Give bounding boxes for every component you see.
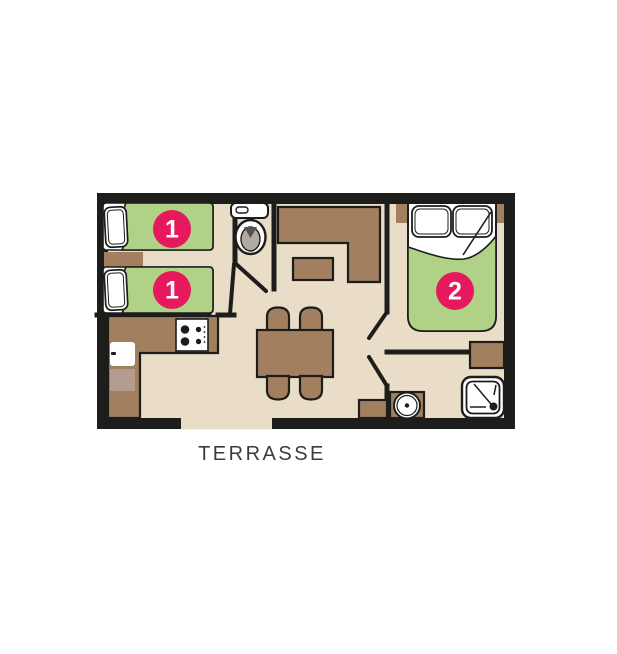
bathroom-cabinet [359, 400, 387, 418]
double-bed-badge-number: 2 [448, 278, 462, 306]
double-bed: 2 [408, 203, 496, 331]
washbasin-icon [390, 392, 424, 419]
stove-icon [176, 319, 208, 351]
floor-plan-drawing: 1 1 [0, 0, 617, 654]
dining-chair [267, 376, 289, 400]
single-bed-2: 1 [103, 267, 213, 313]
dining-table [257, 330, 333, 377]
bed1-badge: 1 [153, 210, 191, 248]
pillow-icon [453, 206, 492, 237]
dining-chair [300, 376, 322, 400]
double-bed-badge: 2 [436, 272, 474, 310]
dining-chair [300, 308, 322, 332]
coffee-table [293, 258, 333, 280]
bed2-badge: 1 [153, 271, 191, 309]
nightstand [104, 252, 143, 268]
dining-chair [267, 308, 289, 332]
terrace-label: TERRASSE [198, 443, 326, 465]
fridge-icon [110, 342, 135, 366]
single-bed-1: 1 [103, 203, 213, 250]
bed2-badge-number: 1 [165, 277, 179, 305]
pillow-icon [104, 206, 128, 247]
shower-icon [462, 377, 504, 418]
bed1-badge-number: 1 [165, 216, 179, 244]
kitchen-cabinet [110, 369, 135, 391]
wardrobe [470, 342, 504, 368]
pillow-icon [412, 206, 451, 237]
terrace-door-opening [181, 418, 272, 429]
floor-plan: 1 1 [0, 0, 617, 654]
pillow-icon [104, 269, 128, 310]
